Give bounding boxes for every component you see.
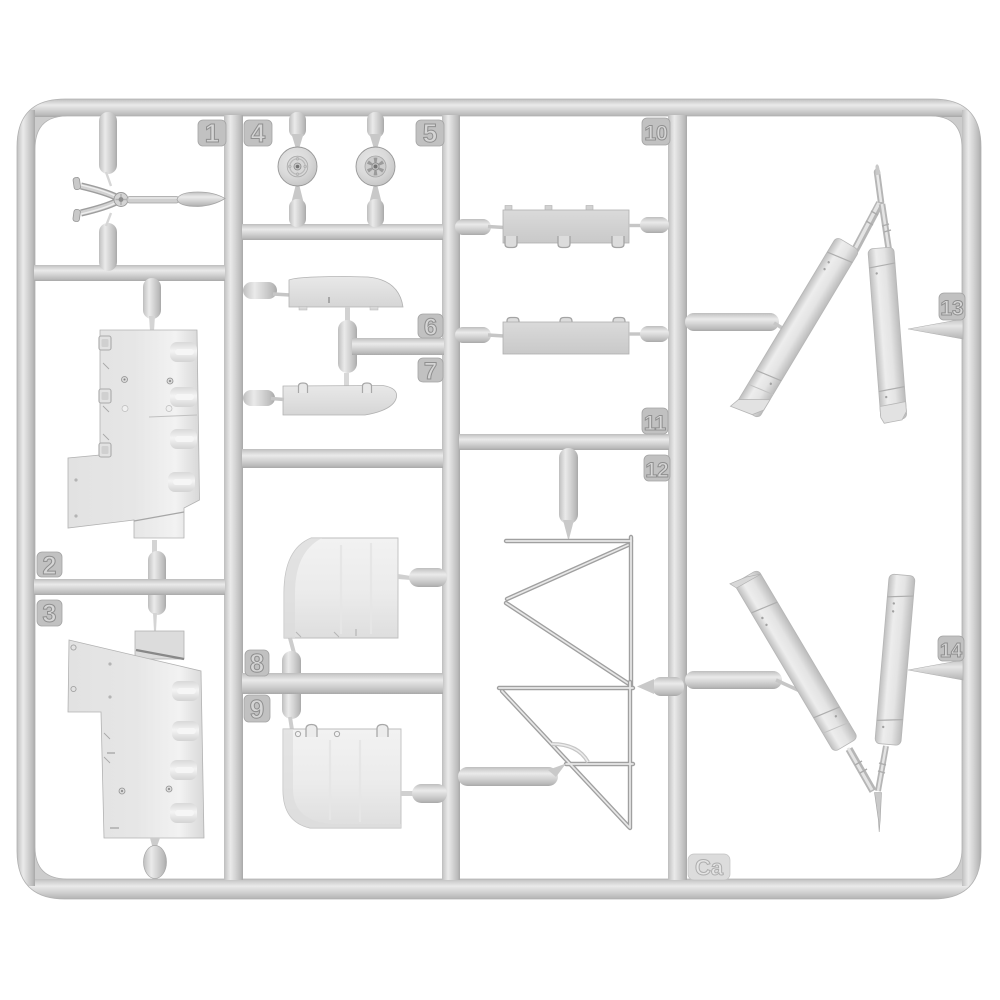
- svg-text:5: 5: [423, 118, 437, 148]
- svg-text:3: 3: [43, 600, 57, 628]
- svg-text:1: 1: [205, 118, 219, 148]
- svg-text:7: 7: [424, 358, 437, 385]
- svg-text:11: 11: [644, 412, 667, 435]
- svg-text:Ca: Ca: [695, 855, 724, 880]
- svg-text:10: 10: [644, 122, 667, 145]
- svg-text:13: 13: [940, 297, 963, 320]
- svg-text:8: 8: [250, 648, 264, 678]
- svg-text:4: 4: [251, 118, 266, 148]
- svg-text:14: 14: [940, 640, 963, 662]
- svg-text:9: 9: [250, 694, 264, 724]
- svg-text:6: 6: [424, 314, 437, 341]
- svg-text:12: 12: [645, 459, 668, 482]
- svg-text:2: 2: [43, 552, 57, 580]
